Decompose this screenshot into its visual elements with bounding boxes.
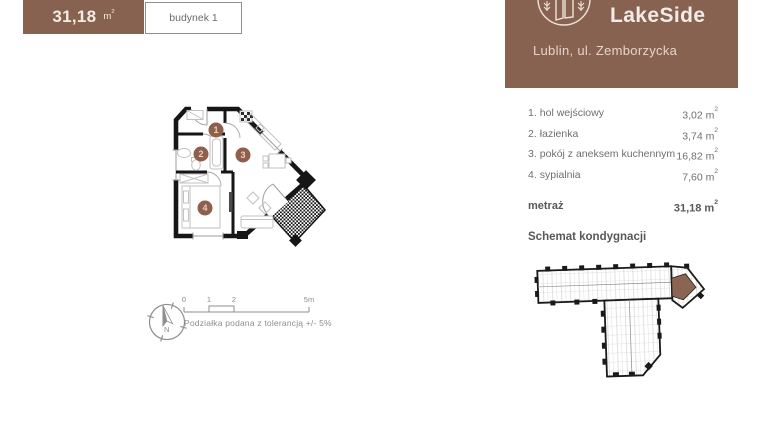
corner-block-bottom [237,231,248,239]
room-row-2: 2. łazienka 3,74 m2 [528,125,718,146]
details-panel: LakeSide Lublin, ul. Zemborzycka 1. hol … [505,0,738,428]
scale-tick-2: 2 [232,295,236,304]
apartment-floorplan: 1 2 3 4 [163,98,333,248]
floor-schematic-title: Schemat kondygnacji [528,231,718,243]
marker-2: 2 [198,149,203,159]
scale-bar: 0 1 2 5m [182,294,318,318]
brand-address: Lublin, ul. Zemborzycka [533,43,677,58]
area-value: 31,18 [52,7,96,27]
lakeside-logo-icon [536,0,592,27]
area-badge: 31,18 m2 [23,0,144,34]
total-area-value: 31,18 m2 [674,198,718,217]
marker-3: 3 [240,150,245,160]
total-area-label: metraż [528,198,674,217]
scale-tick-1: 1 [207,295,211,304]
marker-1: 1 [213,125,218,135]
brand-header: LakeSide Lublin, ul. Zemborzycka [505,0,738,88]
room-row-3: 3. pokój z aneksem kuchennym 16,82 m2 [528,145,718,166]
brand-name: LakeSide [610,4,705,28]
room-row-4: 4. sypialnia 7,60 m2 [528,166,718,187]
total-area-row: metraż 31,18 m2 [528,198,718,217]
building-selector[interactable]: budynek 1 [145,2,242,34]
scale-tolerance-note: Podziałka podana z tolerancją +/- 5% [184,318,364,328]
room-list: 1. hol wejściowy 3,02 m2 2. łazienka 3,7… [528,104,718,186]
scale-tick-0: 0 [182,295,186,304]
marker-4: 4 [202,203,207,213]
building-label: budynek 1 [169,12,217,24]
compass-north-label: N [164,325,169,334]
scale-tick-5m: 5m [304,295,314,304]
area-unit: m2 [103,11,114,22]
room-row-1: 1. hol wejściowy 3,02 m2 [528,104,718,125]
apartment-card-page: 31,18 m2 budynek 1 [0,0,760,428]
floor-schematic [531,254,713,384]
